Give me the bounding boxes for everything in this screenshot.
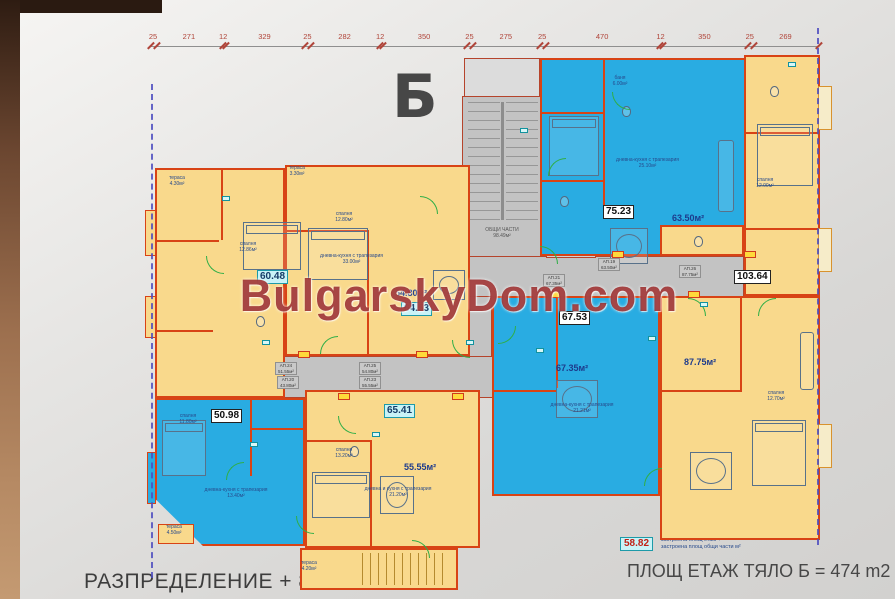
door-opening-mark — [612, 251, 624, 258]
apartment-label-103-64: 103.64 — [734, 270, 771, 284]
apartment-area-67-35: 67.35м² — [556, 363, 588, 373]
dimension-value: 269 — [779, 32, 792, 41]
dimension-value: 25 — [149, 32, 157, 41]
room-label: дневна-кухня с трапезария21.21м² — [532, 403, 632, 415]
apartment-area-63-50: 63.50м² — [672, 213, 704, 223]
apartment-label-50-98: 50.98 — [211, 409, 242, 423]
corridor-label-area: 51.55м² — [278, 369, 294, 375]
door-opening-mark — [452, 393, 464, 400]
corridor-label-no: АП.24 — [278, 363, 294, 369]
toilet-fixture — [560, 196, 569, 207]
balcony — [818, 228, 832, 272]
apartment-label-65-41: 65.41 — [384, 404, 415, 418]
wall — [157, 240, 219, 242]
room-area: 12.86м² — [228, 248, 268, 254]
wall — [662, 390, 740, 392]
room-label: спалня11.80м² — [168, 414, 208, 426]
dimension-value: 350 — [698, 32, 711, 41]
watermark: BulgarskyDom.com — [224, 270, 694, 322]
dimension-value: 25 — [746, 32, 754, 41]
stair-divider — [501, 102, 504, 220]
door-opening-mark — [744, 251, 756, 258]
room-label: дневна-кухня с трапезария25.10м² — [600, 158, 695, 170]
toilet-fixture — [770, 86, 779, 97]
room-label: дневна и кухня с трапезария21.20м² — [348, 487, 448, 499]
dimension-value: 25 — [303, 32, 311, 41]
left-border-strip — [0, 0, 20, 599]
wall — [307, 440, 371, 442]
common-area-value: 98.49м² — [478, 234, 526, 240]
room-area: 21.21м² — [532, 409, 632, 415]
room-area: 4.50м² — [152, 531, 196, 537]
door-dimension-mark — [700, 302, 708, 307]
wall — [252, 428, 304, 430]
apartment-area-87-75: 87.75м² — [684, 357, 716, 367]
room-label: тераса4.20м² — [292, 561, 326, 573]
room-label: тераса3.30м² — [283, 166, 311, 178]
dining-table — [690, 452, 732, 490]
door-dimension-mark — [648, 336, 656, 341]
room-area: 11.80м² — [168, 420, 208, 426]
bed — [162, 420, 206, 476]
corridor-label-no: АП.23 — [362, 377, 378, 383]
dimension-value: 25 — [538, 32, 546, 41]
stair-flight-left — [468, 102, 500, 220]
room-area: 12.70м² — [756, 397, 796, 403]
room-area: 3.30м² — [283, 172, 311, 178]
stair-flight-right — [506, 102, 538, 220]
room-label: спалня12.70м² — [756, 391, 796, 403]
door-dimension-mark — [520, 128, 528, 133]
wall — [542, 112, 604, 114]
room-area: 12.00м² — [744, 184, 786, 190]
dimension-value: 470 — [596, 32, 609, 41]
corridor-label-ap20: АП.20 43.80м² — [277, 376, 299, 389]
room-label: спалня13.20м² — [324, 448, 364, 460]
wall — [221, 170, 223, 240]
caption-floor-area: ПЛОЩ ЕТАЖ ТЯЛО Б = 474 m2 — [627, 561, 890, 582]
door-dimension-mark — [466, 340, 474, 345]
dimension-value: 25 — [465, 32, 473, 41]
floorplan-page: 2527112329252821235025275254701235025269… — [0, 0, 895, 599]
door-dimension-mark — [372, 432, 380, 437]
dimension-value: 12 — [376, 32, 384, 41]
exterior-stairs — [362, 553, 450, 585]
room-area: 13.20м² — [324, 454, 364, 460]
room-label: тераса4.50м² — [152, 525, 196, 537]
corridor-label-ap25: АП.25 54.80м² — [359, 362, 381, 375]
room-area: 13.40м² — [192, 494, 280, 500]
dimension-value: 329 — [258, 32, 271, 41]
room-label: спалня12.80м² — [324, 212, 364, 224]
dimension-value: 275 — [500, 32, 513, 41]
dimension-value: 282 — [338, 32, 351, 41]
top-border-bar — [20, 0, 162, 13]
room-area: 4.30м² — [162, 182, 192, 188]
door-dimension-mark — [262, 340, 270, 345]
corridor-label-ap23: АП.23 55.55м² — [359, 376, 381, 389]
room-label: баня6.00м² — [604, 76, 636, 88]
room-label: дневна-кухня с трапезария13.40м² — [192, 488, 280, 500]
dimension-value: 12 — [219, 32, 227, 41]
door-dimension-mark — [250, 442, 258, 447]
corridor-label-no: АП.20 — [280, 377, 296, 383]
bed — [752, 420, 806, 486]
room-area: 4.20м² — [292, 567, 326, 573]
room-area: 12.80м² — [324, 218, 364, 224]
dimension-baseline — [150, 46, 818, 47]
room-area: 25.10м² — [600, 164, 695, 170]
room-area: 33.00м² — [304, 260, 399, 266]
room-label: спалня12.86м² — [228, 242, 268, 254]
dimension-value: 350 — [418, 32, 431, 41]
legend-value-badge: 58.82 — [620, 537, 653, 551]
toilet-fixture — [694, 236, 703, 247]
property-boundary-left — [151, 84, 153, 578]
wall — [157, 330, 213, 332]
balcony — [818, 86, 832, 130]
wall — [494, 390, 556, 392]
room-label: дневна-кухня с трапезария33.00м² — [304, 254, 399, 266]
corridor-label-area: 55.55м² — [362, 383, 378, 389]
room-label: спалня12.00м² — [744, 178, 786, 190]
corridor-label-area: 54.80м² — [362, 369, 378, 375]
property-boundary-right — [817, 28, 819, 545]
common-area-label: ОБЩИ ЧАСТИ 98.49м² — [478, 228, 526, 240]
door-opening-mark — [416, 351, 428, 358]
corridor-label-ap24: АП.24 51.55м² — [275, 362, 297, 375]
door-dimension-mark — [222, 196, 230, 201]
balcony — [818, 424, 832, 468]
dimension-value: 12 — [656, 32, 664, 41]
wall — [250, 400, 252, 476]
sofa — [718, 140, 734, 212]
door-opening-mark — [338, 393, 350, 400]
dimension-value: 271 — [183, 32, 196, 41]
room-area: 6.00м² — [604, 82, 636, 88]
door-opening-mark — [298, 351, 310, 358]
room-label: тераса4.30м² — [162, 176, 192, 188]
legend-line-2: застроена площ общи части м² — [661, 544, 741, 551]
apartment-area-55-55: 55.55м² — [404, 462, 436, 472]
corridor-label-no: АП.25 — [362, 363, 378, 369]
apartment-label-75-23: 75.23 — [603, 205, 634, 219]
entry-vestibule — [464, 58, 540, 98]
corridor-label-area: 43.80м² — [280, 383, 296, 389]
wall — [746, 228, 818, 230]
sofa — [800, 332, 814, 390]
door-dimension-mark — [536, 348, 544, 353]
door-dimension-mark — [788, 62, 796, 67]
wall — [542, 180, 604, 182]
corridor-label-no: АП.19 — [601, 259, 617, 265]
wall — [740, 298, 742, 392]
block-letter: Б — [392, 62, 438, 132]
room-area: 21.20м² — [348, 493, 448, 499]
